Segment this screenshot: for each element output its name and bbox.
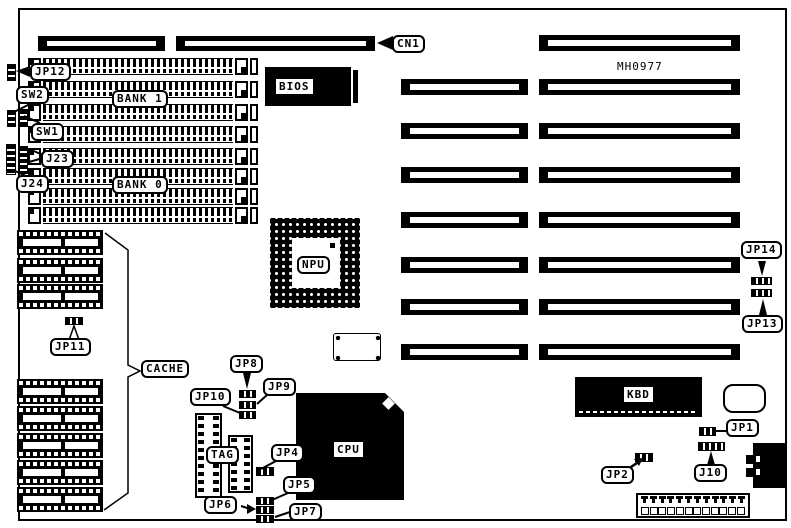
bios-chip-tab bbox=[353, 70, 358, 103]
isa-slot bbox=[401, 299, 528, 315]
jumper-jp11 bbox=[65, 317, 83, 325]
jumper-jp4 bbox=[256, 467, 274, 476]
callout-bank0: BANK 0 bbox=[112, 176, 168, 194]
jumper-jp10 bbox=[239, 411, 256, 419]
cache-chip bbox=[17, 230, 103, 255]
callout-jp13: JP13 bbox=[742, 315, 783, 333]
jumper-jp5 bbox=[256, 497, 274, 505]
callout-jp2: JP2 bbox=[601, 466, 634, 484]
callout-jp11: JP11 bbox=[50, 338, 91, 356]
din-connector-tab bbox=[746, 468, 754, 477]
callout-jp6: JP6 bbox=[204, 496, 237, 514]
callout-jp7: JP7 bbox=[289, 503, 322, 521]
isa-slot bbox=[401, 167, 528, 183]
din-connector-pin bbox=[756, 469, 760, 475]
jumper-jp8 bbox=[239, 390, 256, 398]
isa-slot bbox=[539, 79, 740, 95]
motherboard-diagram: MH0977 BIOS CPU KBD bbox=[0, 0, 791, 528]
isa-slot bbox=[539, 257, 740, 273]
jumper-j10 bbox=[698, 442, 725, 451]
jumper-jp2 bbox=[635, 453, 653, 462]
cache-chip bbox=[17, 460, 103, 485]
isa-slot bbox=[539, 167, 740, 183]
power-connector-pins bbox=[641, 496, 745, 504]
cache-chip bbox=[17, 284, 103, 309]
callout-bank1: BANK 1 bbox=[112, 90, 168, 108]
cpu-label: CPU bbox=[334, 442, 363, 457]
jumper-jp7 bbox=[256, 515, 274, 523]
callout-jp8: JP8 bbox=[230, 355, 263, 373]
isa-slot bbox=[539, 35, 740, 51]
jumper-j24 bbox=[19, 146, 28, 174]
callout-j23: J23 bbox=[41, 150, 74, 168]
din-connector-pin bbox=[756, 456, 760, 462]
board-part-number: MH0977 bbox=[617, 60, 663, 73]
cache-chip bbox=[17, 487, 103, 512]
callout-jp5: JP5 bbox=[283, 476, 316, 494]
tag-socket bbox=[228, 435, 253, 493]
component-outline bbox=[723, 384, 766, 413]
isa-slot bbox=[401, 257, 528, 273]
jumper-jp1 bbox=[699, 427, 716, 436]
callout-jp9: JP9 bbox=[263, 378, 296, 396]
callout-npu: NPU bbox=[297, 256, 330, 274]
cache-chip bbox=[17, 406, 103, 431]
callout-jp1: JP1 bbox=[726, 419, 759, 437]
cn1-connector-segment bbox=[38, 36, 165, 51]
callout-tag: TAG bbox=[206, 446, 239, 464]
callout-j10: J10 bbox=[694, 464, 727, 482]
npu-pin1-marker bbox=[330, 243, 335, 248]
cache-chip bbox=[17, 379, 103, 404]
power-connector bbox=[636, 493, 750, 518]
isa-slot bbox=[539, 212, 740, 228]
cn1-connector-segment bbox=[176, 36, 375, 51]
bios-label: BIOS bbox=[276, 79, 313, 94]
cache-chip bbox=[17, 433, 103, 458]
isa-slot bbox=[539, 344, 740, 360]
switch-sw1 bbox=[19, 109, 28, 127]
callout-jp10: JP10 bbox=[190, 388, 231, 406]
callout-sw2: SW2 bbox=[16, 86, 49, 104]
jumper-j23 bbox=[6, 144, 16, 175]
power-connector-holes bbox=[641, 507, 745, 515]
jumper-jp6 bbox=[256, 506, 274, 514]
cache-chip bbox=[17, 258, 103, 283]
callout-jp12: JP12 bbox=[30, 63, 71, 81]
callout-cache: CACHE bbox=[141, 360, 189, 378]
keyboard-din-connector bbox=[753, 443, 785, 488]
callout-sw1: SW1 bbox=[31, 123, 64, 141]
jumper-jp12 bbox=[7, 64, 16, 81]
simm-socket-row bbox=[28, 207, 258, 224]
keyboard-controller-pins bbox=[579, 411, 698, 413]
callout-jp14: JP14 bbox=[741, 241, 782, 259]
callout-cn1: CN1 bbox=[392, 35, 425, 53]
callout-j24: J24 bbox=[16, 175, 49, 193]
jumper-jp14 bbox=[751, 277, 772, 285]
isa-slot bbox=[401, 79, 528, 95]
switch-sw2 bbox=[7, 110, 16, 127]
kbd-label: KBD bbox=[624, 387, 653, 402]
isa-slot bbox=[539, 299, 740, 315]
din-connector-tab bbox=[746, 455, 754, 464]
jumper-jp9 bbox=[239, 401, 256, 409]
callout-jp4: JP4 bbox=[271, 444, 304, 462]
isa-slot bbox=[539, 123, 740, 139]
isa-slot bbox=[401, 123, 528, 139]
isa-slot bbox=[401, 212, 528, 228]
jumper-jp13 bbox=[751, 289, 772, 297]
isa-slot bbox=[401, 344, 528, 360]
oscillator bbox=[333, 333, 381, 361]
